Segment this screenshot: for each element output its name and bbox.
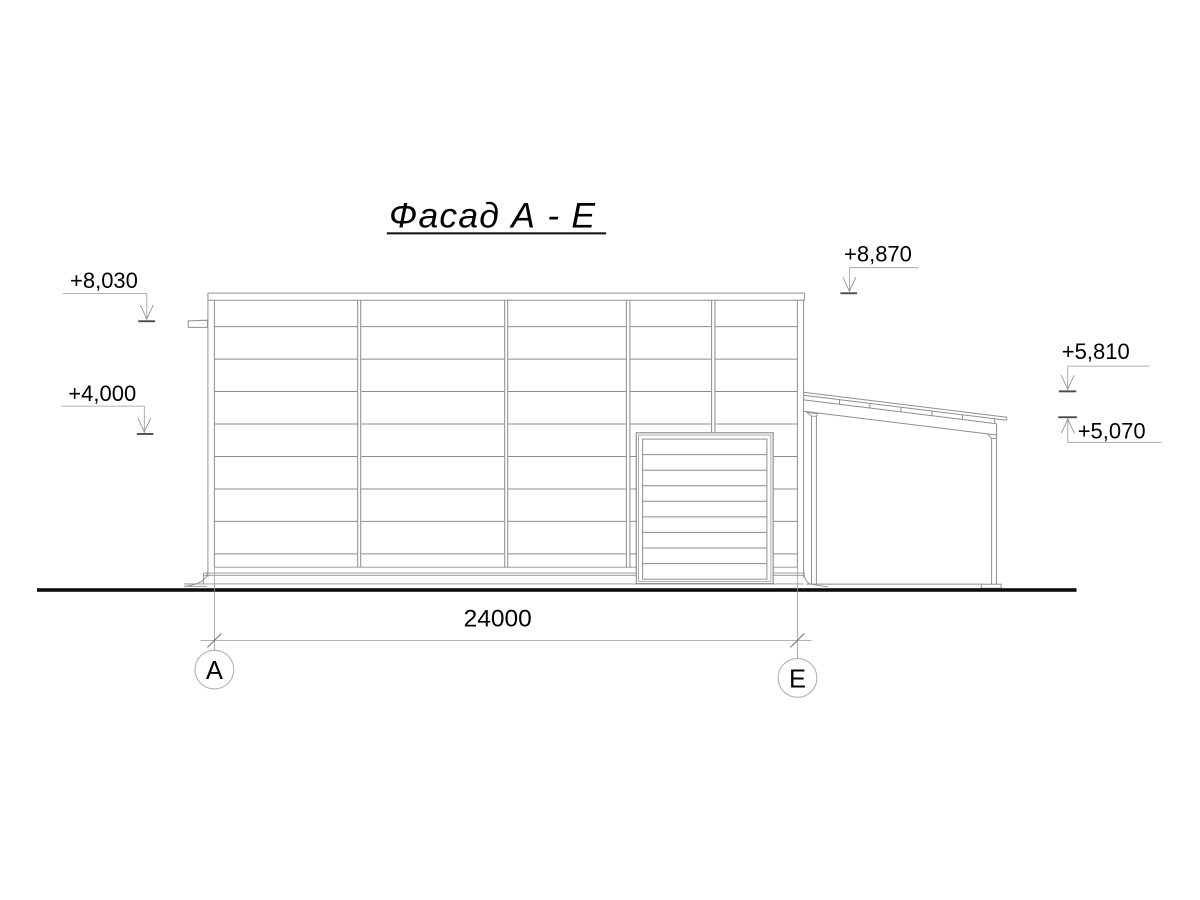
svg-text:24000: 24000 — [464, 606, 532, 633]
svg-text:+8,030: +8,030 — [70, 268, 138, 293]
svg-text:Фасад А - Е: Фасад А - Е — [389, 196, 595, 236]
svg-text:Е: Е — [789, 665, 806, 693]
svg-text:+5,070: +5,070 — [1078, 419, 1146, 444]
svg-text:+4,000: +4,000 — [68, 381, 136, 406]
svg-text:А: А — [206, 657, 223, 685]
svg-text:+8,870: +8,870 — [844, 242, 912, 267]
svg-text:+5,810: +5,810 — [1062, 339, 1130, 364]
